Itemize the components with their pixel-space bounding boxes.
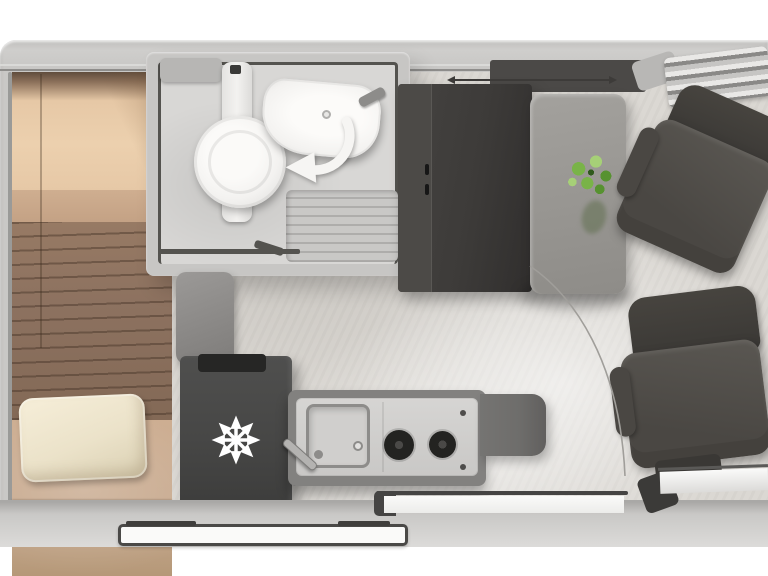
step-grip [126,521,196,526]
floorplan-canvas: Campervan floor plan — top view [0,0,768,576]
toilet-flush-button [230,65,241,74]
wardrobe-handle [425,184,429,195]
sliding-door-opening [384,496,624,513]
entry-step [118,524,408,546]
curtain-rail [452,79,612,81]
kitchen-counter [288,390,486,486]
cab-sill [660,468,768,494]
snowflake-icon [207,411,265,469]
swivel-arrow-icon [278,112,364,198]
step-grip [338,521,390,526]
sink-drain [353,441,363,451]
shower-tray [286,190,398,262]
door-arc-icon [518,258,634,482]
bathroom [146,52,410,276]
hob-screw [460,464,466,470]
bathroom-shelf [160,58,222,82]
burner-icon [429,431,456,458]
toilet-seat-ring [208,130,272,194]
faucet-joint [314,450,323,459]
fridge-vent [198,354,266,372]
kitchen-worktop [296,398,478,476]
worktop-divider [382,402,384,472]
burner-icon [384,430,414,460]
hob-screw [460,410,466,416]
bed-frame-line [40,74,42,348]
pillow [18,393,148,482]
wardrobe-handle [425,164,429,175]
sliding-door-rail [376,491,628,495]
wardrobe-cabinet [398,84,532,292]
ottoman-cushion [176,272,234,364]
seat-cushion [619,338,768,470]
rail-arrow-right-icon [609,76,617,84]
rail-arrow-left-icon [447,76,455,84]
